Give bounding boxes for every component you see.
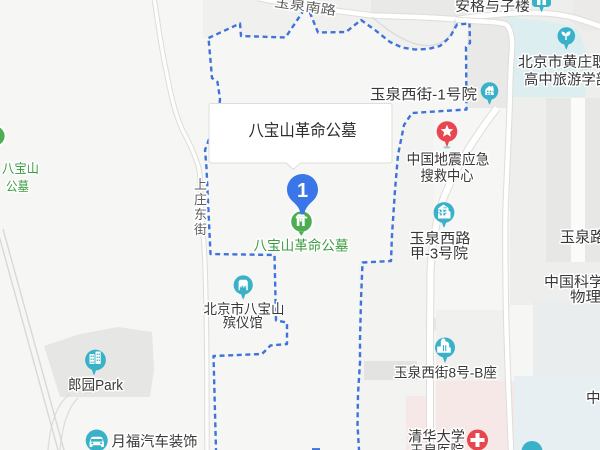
svg-text:殡仪馆: 殡仪馆 bbox=[223, 315, 263, 331]
svg-text:公墓: 公墓 bbox=[6, 179, 29, 194]
svg-text:物理: 物理 bbox=[570, 289, 600, 306]
svg-text:东: 东 bbox=[194, 207, 207, 222]
svg-text:八宝山: 八宝山 bbox=[2, 161, 39, 176]
svg-text:高中旅游学部: 高中旅游学部 bbox=[524, 72, 600, 89]
svg-text:1: 1 bbox=[297, 180, 308, 202]
svg-text:甲-3号院: 甲-3号院 bbox=[410, 246, 469, 263]
svg-text:中国地震应急: 中国地震应急 bbox=[407, 151, 490, 169]
svg-text:庄: 庄 bbox=[194, 192, 207, 207]
svg-text:玉泉西街8号-B座: 玉泉西街8号-B座 bbox=[394, 365, 497, 381]
svg-text:八宝山革命公墓: 八宝山革命公墓 bbox=[249, 121, 357, 140]
svg-text:搜救中心: 搜救中心 bbox=[421, 168, 474, 185]
svg-text:上: 上 bbox=[194, 177, 207, 192]
svg-text:八宝山革命公墓: 八宝山革命公墓 bbox=[254, 238, 349, 254]
svg-text:玉泉西街-1号院: 玉泉西街-1号院 bbox=[370, 87, 478, 104]
svg-text:玉泉路: 玉泉路 bbox=[560, 229, 600, 246]
svg-text:玉泉西路: 玉泉西路 bbox=[410, 231, 472, 248]
svg-text:北京市黄庄职: 北京市黄庄职 bbox=[518, 53, 600, 71]
svg-text:中国科学: 中国科学 bbox=[544, 274, 600, 291]
svg-text:清华大学: 清华大学 bbox=[408, 429, 465, 446]
svg-text:安格与子楼: 安格与子楼 bbox=[455, 0, 530, 14]
svg-text:街: 街 bbox=[194, 222, 207, 237]
svg-text:月福汽车装饰: 月福汽车装饰 bbox=[112, 434, 198, 450]
svg-text:郎园Park: 郎园Park bbox=[68, 377, 124, 394]
svg-text:中: 中 bbox=[586, 390, 600, 407]
svg-text:玉泉医院: 玉泉医院 bbox=[410, 443, 464, 450]
